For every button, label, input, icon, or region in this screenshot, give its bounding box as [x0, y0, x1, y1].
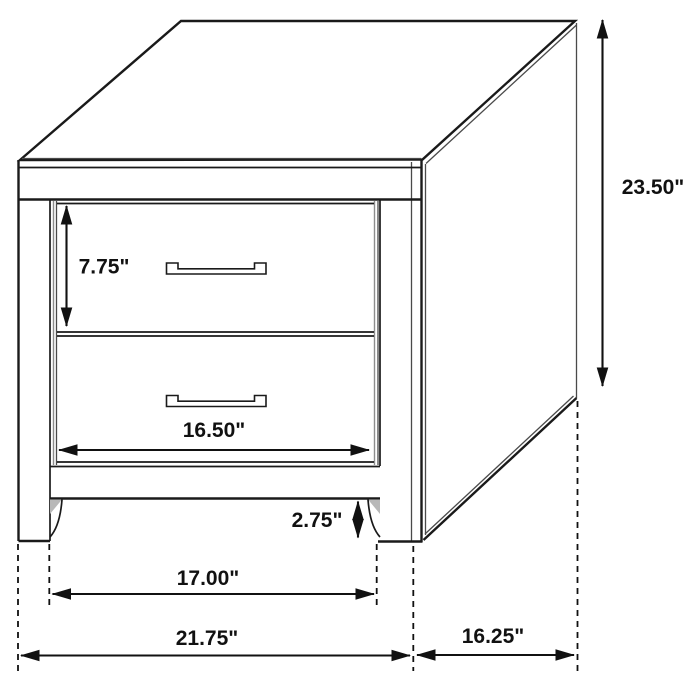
dimension-base-clearance: 2.75" [292, 502, 358, 538]
drawer-1-handle [167, 263, 267, 274]
legs [19, 500, 423, 542]
dim-label-base-clearance: 2.75" [292, 509, 343, 532]
dimension-drawer-height: 7.75" [67, 206, 130, 326]
side-bottom-edge [424, 398, 577, 540]
dimension-overall-depth: 16.25" [417, 625, 574, 655]
dim-label-overall-depth: 16.25" [462, 625, 525, 648]
front-frame [19, 160, 422, 542]
dim-label-drawer-height: 7.75" [79, 256, 130, 279]
dimension-overall-height: 23.50" [603, 20, 685, 386]
drawer-2-handle [167, 396, 267, 407]
dimension-leg-span: 17.00" [53, 567, 375, 594]
dim-label-drawer-width: 16.50" [183, 419, 246, 442]
dimension-drawer-width: 16.50" [59, 419, 369, 450]
diagram-canvas: 7.75" 23.50" 16.50" 2.75" 17.00" 21.75" … [0, 0, 700, 700]
top-right-bevel-line [426, 25, 577, 164]
nightstand-dimension-diagram: 7.75" 23.50" 16.50" 2.75" 17.00" 21.75" … [0, 0, 700, 700]
dimension-overall-width: 21.75" [21, 627, 410, 656]
dim-label-overall-width: 21.75" [176, 627, 239, 650]
top-surface [20, 21, 575, 160]
drawer-2 [57, 336, 374, 462]
dim-label-leg-span: 17.00" [177, 567, 240, 590]
bottom-rail [50, 467, 380, 499]
dim-label-overall-height: 23.50" [622, 176, 685, 199]
top-face [20, 21, 577, 164]
side-bottom-bevel-line [425, 396, 574, 534]
side-panel [424, 23, 577, 540]
